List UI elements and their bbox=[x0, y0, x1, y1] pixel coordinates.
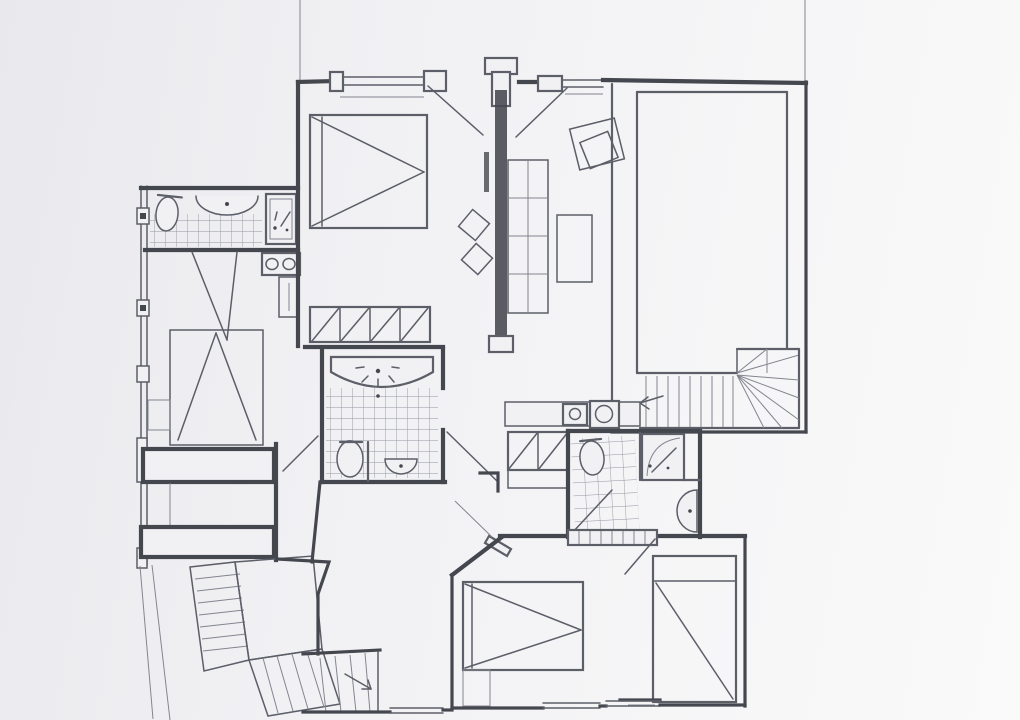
right-room bbox=[612, 82, 806, 432]
armchair bbox=[570, 118, 625, 170]
bathroom-central bbox=[305, 347, 445, 482]
wardrobe-diagonal bbox=[310, 307, 430, 342]
bathroom-right bbox=[568, 431, 700, 537]
hall-closet bbox=[508, 432, 568, 488]
appliance-with-sparkle bbox=[266, 194, 296, 244]
wall-bar-lower bbox=[141, 527, 274, 557]
washing-machine bbox=[590, 401, 619, 428]
bed bbox=[310, 115, 427, 228]
bedroom-top-left bbox=[298, 82, 430, 346]
window-bottom-mid bbox=[543, 703, 600, 708]
winder-staircase bbox=[640, 349, 799, 428]
door-track bbox=[484, 152, 489, 192]
stool bbox=[461, 243, 492, 274]
stair-flight-lower bbox=[249, 649, 340, 716]
door-swing-hall-left bbox=[283, 436, 318, 471]
stove bbox=[262, 253, 300, 275]
table bbox=[557, 215, 592, 282]
bed bbox=[170, 330, 263, 445]
bathroom-top-left bbox=[141, 188, 298, 250]
basin-niche bbox=[677, 480, 700, 532]
stair-landing bbox=[235, 556, 322, 660]
bedroom-bottom bbox=[452, 530, 745, 708]
top-exterior-wall bbox=[298, 58, 806, 106]
radiator bbox=[568, 530, 657, 545]
door-swing-top-left bbox=[428, 86, 483, 135]
shower-cabin bbox=[642, 434, 684, 480]
laundry-counter bbox=[505, 401, 640, 428]
wall-bar-upper bbox=[143, 449, 274, 482]
bed bbox=[463, 582, 583, 706]
toilet bbox=[337, 441, 363, 477]
terrace-outline bbox=[300, 0, 805, 83]
door-swing-kitchen bbox=[192, 252, 237, 340]
window-bottom-left bbox=[390, 708, 443, 713]
inner-wall-faces bbox=[637, 92, 787, 373]
sink bbox=[196, 196, 258, 215]
left-exterior-wall bbox=[137, 186, 149, 568]
window-top-left bbox=[330, 71, 446, 97]
night-stand bbox=[148, 400, 170, 430]
window-bottom-right bbox=[606, 701, 660, 706]
shelf-unit bbox=[508, 160, 548, 313]
exterior-staircase bbox=[140, 556, 340, 720]
stair-direction-arrow bbox=[640, 396, 663, 409]
hall-wall bbox=[312, 482, 320, 562]
stair-flight-upper bbox=[190, 562, 249, 671]
floor-plan-canvas bbox=[0, 0, 1020, 720]
interior-stair-run bbox=[277, 559, 380, 712]
bedroom-left bbox=[148, 330, 263, 445]
stool bbox=[459, 210, 490, 241]
door-swing-top-right bbox=[516, 88, 567, 137]
left-lower-walls bbox=[141, 444, 276, 560]
window-top-right bbox=[538, 76, 603, 94]
floor-plan-sketch bbox=[0, 0, 1020, 720]
sink-unit bbox=[563, 404, 587, 425]
wardrobe bbox=[653, 556, 736, 702]
kitchen-corner bbox=[262, 253, 300, 317]
